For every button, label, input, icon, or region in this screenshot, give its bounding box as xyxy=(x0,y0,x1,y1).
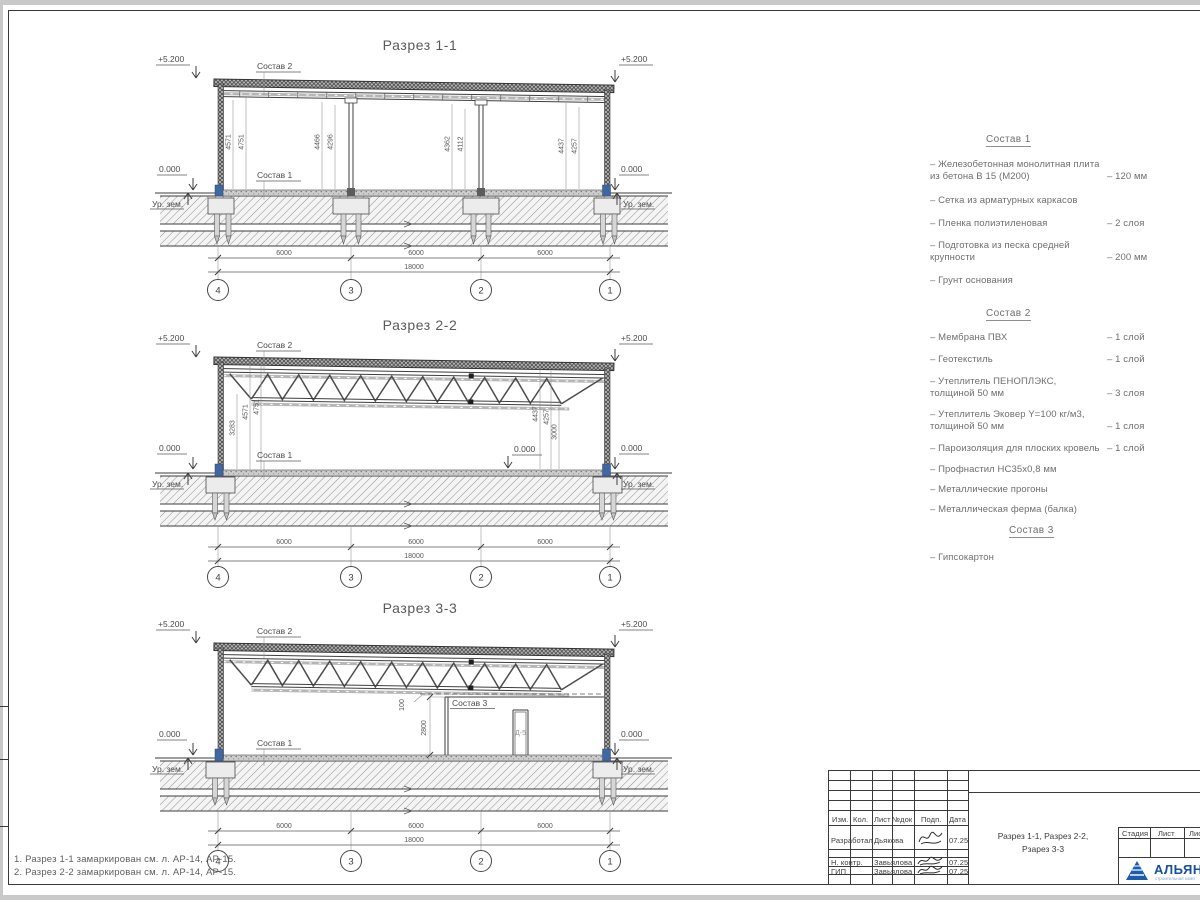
material-item: – Утеплитель Эковер Y=100 кг/м3,толщиной… xyxy=(930,409,1140,432)
tb-person: Завьялова xyxy=(874,867,912,876)
sostav2-heading: Состав 2 xyxy=(986,308,1031,321)
tb-role: ГИП xyxy=(831,867,846,876)
material-value: – 1 слой xyxy=(1107,354,1145,366)
roof-truss xyxy=(213,357,614,410)
door-label: Д-5 xyxy=(515,730,526,737)
vdim-label: 4466 xyxy=(315,134,322,150)
total-dim-label: 18000 xyxy=(404,837,424,844)
span-dim-label: 6000 xyxy=(408,539,424,546)
vdim-label: 4296 xyxy=(328,134,335,150)
purlin-ticks xyxy=(240,91,588,102)
interior-columns xyxy=(345,98,487,196)
tb-col-stadia: Стадия xyxy=(1122,829,1148,838)
span-dim-label: 6000 xyxy=(276,539,292,546)
frame-tick xyxy=(0,826,8,827)
ground-level-label: Ур. зем. xyxy=(152,479,183,489)
material-item: – Утеплитель ПЕНОПЛЭКС,толщиной 50 мм– 3… xyxy=(930,376,1140,399)
vdim-label: 4571 xyxy=(226,134,233,150)
axis-number: 3 xyxy=(348,286,353,297)
ground-strata xyxy=(160,761,668,814)
axis-bubbles: 4 3 2 1 xyxy=(208,567,621,588)
material-text: – Геотекстиль xyxy=(930,354,993,365)
vdim-label: 3000 xyxy=(552,424,559,440)
material-value: – 1 слоя xyxy=(1107,421,1144,433)
vdim-label: 100 xyxy=(399,699,406,711)
dimension-lines: 6000 6000 6000 18000 xyxy=(208,526,620,566)
elevation-label: +5.200 xyxy=(621,54,648,64)
section-3-3-drawing: Д-5 Состав 3 2800 100 Состав 2 Состав 1 … xyxy=(140,595,700,887)
document-title: Разрез 1-1, Разрез 2-2, Рзарез 3-3 xyxy=(970,830,1116,856)
material-item: – Грунт основания xyxy=(930,275,1140,287)
material-value: – 3 слоя xyxy=(1107,388,1144,400)
sostav-label: Состав 1 xyxy=(257,450,293,460)
span-dim-label: 6000 xyxy=(408,250,424,257)
vdim-label: 4362 xyxy=(445,136,452,152)
vdim-label: 3283 xyxy=(230,420,237,436)
note-line: 2. Разрез 2-2 замаркирован см. л. АР-14,… xyxy=(14,867,236,878)
axis-number: 3 xyxy=(348,857,353,868)
material-item: – Сетка из арматурных каркасов xyxy=(930,195,1140,207)
floor-slab xyxy=(155,470,672,476)
axis-number: 3 xyxy=(348,573,353,584)
material-item: – Металлическая ферма (балка) xyxy=(930,504,1140,516)
material-text: – Железобетонная монолитная плита xyxy=(930,159,1100,170)
tb-person: Завьялова xyxy=(874,858,912,867)
dimension-lines: 6000 6000 6000 18000 xyxy=(208,811,620,850)
axis-number: 2 xyxy=(478,573,483,584)
axis-number: 1 xyxy=(607,857,612,868)
elevation-label: +5.200 xyxy=(158,333,185,343)
elevation-label: 0.000 xyxy=(514,444,536,454)
roof-truss xyxy=(213,643,614,696)
ground-level-label: Ур. зем. xyxy=(623,199,654,209)
axis-number: 2 xyxy=(478,286,483,297)
elevation-label: 0.000 xyxy=(621,443,643,453)
material-item: – Подготовка из песка среднейкрупности– … xyxy=(930,240,1140,263)
span-dim-label: 6000 xyxy=(537,250,553,257)
total-dim-label: 18000 xyxy=(404,264,424,271)
ground-level-label: Ур. зем. xyxy=(623,764,654,774)
material-text: из бетона В 15 (М200) xyxy=(930,171,1030,182)
signature xyxy=(916,828,946,848)
sostav-label: Состав 2 xyxy=(257,340,293,350)
roof xyxy=(214,79,614,103)
material-text: – Пленка полиэтиленовая xyxy=(930,218,1048,229)
material-text: – Мембрана ПВХ xyxy=(930,332,1007,343)
tb-col-listov: Лис xyxy=(1189,829,1200,838)
material-item: – Пленка полиэтиленовая– 2 слоя xyxy=(930,218,1140,230)
tb-role: Разработал xyxy=(831,836,873,845)
sostav-label: Состав 1 xyxy=(257,738,293,748)
axis-number: 2 xyxy=(478,857,483,868)
elevation-label: +5.200 xyxy=(621,619,648,629)
partition-wall: Д-5 Состав 3 2800 100 xyxy=(399,694,604,758)
frame-tick xyxy=(0,759,8,760)
elevation-label: 0.000 xyxy=(159,729,181,739)
elevation-marks: +5.200 +5.200 0.000 0.000 0.000 Ур. зем.… xyxy=(150,333,655,489)
tb-col-podp: Подп. xyxy=(921,815,941,824)
span-dim-label: 6000 xyxy=(408,823,424,830)
material-text: – Грунт основания xyxy=(930,275,1013,286)
material-item: – Профнастил НС35х0,8 мм xyxy=(930,464,1140,476)
vdim-label: 4571 xyxy=(243,404,250,420)
span-dim-label: 6000 xyxy=(276,823,292,830)
material-text: – Металлическая ферма (балка) xyxy=(930,504,1077,515)
material-text: – Пароизоляция для плоских кровель xyxy=(930,443,1100,454)
material-value: – 1 слой xyxy=(1107,443,1145,455)
tb-col-ndok: №док xyxy=(892,815,912,824)
door: Д-5 xyxy=(513,710,528,755)
material-item: – Железобетонная монолитная плитаиз бето… xyxy=(930,159,1140,182)
elevation-label: 0.000 xyxy=(159,164,181,174)
elevation-label: 0.000 xyxy=(621,164,643,174)
material-item: – Гипсокартон xyxy=(930,552,1140,564)
document-title-line1: Разрез 1-1, Разрез 2-2, xyxy=(970,830,1116,843)
axis-number: 4 xyxy=(215,573,220,584)
tb-role: Н. контр. xyxy=(831,858,863,867)
material-value: – 200 мм xyxy=(1107,252,1147,264)
material-text: – Утеплитель Эковер Y=100 кг/м3, xyxy=(930,409,1085,420)
note-line: 1. Разрез 1-1 замаркирован см. л. АР-14,… xyxy=(14,854,236,865)
span-dim-label: 6000 xyxy=(537,539,553,546)
vdim-label: 2800 xyxy=(421,720,428,736)
tb-date: 07.25 xyxy=(949,858,968,867)
elevation-label: +5.200 xyxy=(158,619,185,629)
material-text: – Профнастил НС35х0,8 мм xyxy=(930,464,1057,475)
material-text: – Сетка из арматурных каркасов xyxy=(930,195,1077,206)
tb-date: 07.25 xyxy=(949,867,968,876)
material-item: – Мембрана ПВХ– 1 слой xyxy=(930,332,1140,344)
tb-date: 07.25 xyxy=(949,836,968,845)
title-block: Изм. Кол. Лист №док Подп. Дата Разработа… xyxy=(828,770,1200,884)
logo-pyramid-icon xyxy=(1124,859,1152,883)
material-text: – Гипсокартон xyxy=(930,552,994,563)
elevation-label: 0.000 xyxy=(621,729,643,739)
material-item: – Геотекстиль– 1 слой xyxy=(930,354,1140,366)
vdim-label: 4112 xyxy=(458,136,465,151)
frame-tick xyxy=(0,706,8,707)
sostav-label: Состав 3 xyxy=(452,698,488,708)
sostav-label: Состав 1 xyxy=(257,170,293,180)
vdim-label: 4751 xyxy=(239,134,246,150)
axis-number: 1 xyxy=(607,286,612,297)
vdim-label: 4437 xyxy=(533,406,540,422)
material-item: – Пароизоляция для плоских кровель– 1 сл… xyxy=(930,443,1140,455)
sostav-label: Состав 2 xyxy=(257,61,293,71)
company-logo: АЛЬЯН строительная комп xyxy=(1124,859,1200,883)
tb-col-list2: Лист xyxy=(1158,829,1175,838)
section-1-1-drawing: 4571 4751 4466 4296 4362 4112 4437 4257 … xyxy=(140,30,700,305)
drawing-sheet-page: { "colors": { "logo_blue": "#17509e", "l… xyxy=(0,0,1200,900)
logo-name: АЛЬЯН xyxy=(1154,862,1200,877)
section-2-2-drawing: 3283 4571 4751 4437 4257 3000 Состав 2 С… xyxy=(140,310,700,590)
material-text: – Металлические прогоны xyxy=(930,484,1048,495)
span-dim-label: 6000 xyxy=(537,823,553,830)
material-text: толщиной 50 мм xyxy=(930,421,1004,432)
material-text: крупности xyxy=(930,252,975,263)
vdim-label: 4437 xyxy=(559,138,566,154)
floor-slab xyxy=(155,755,672,761)
axis-number: 4 xyxy=(215,286,220,297)
axis-number: 1 xyxy=(607,573,612,584)
sostav-label: Состав 2 xyxy=(257,626,293,636)
ground-strata xyxy=(160,196,668,249)
elevation-label: +5.200 xyxy=(158,54,185,64)
material-value: – 1 слой xyxy=(1107,332,1145,344)
tb-person: Дьякова xyxy=(874,836,903,845)
material-item: – Металлические прогоны xyxy=(930,484,1140,496)
material-text: – Утеплитель ПЕНОПЛЭКС, xyxy=(930,376,1056,387)
tb-col-izm: Изм. xyxy=(832,815,848,824)
sostav1-heading: Состав 1 xyxy=(986,134,1031,147)
material-value: – 120 мм xyxy=(1107,171,1147,183)
elevation-label: 0.000 xyxy=(159,443,181,453)
span-dim-label: 6000 xyxy=(276,250,292,257)
ground-strata xyxy=(160,476,668,529)
ground-level-label: Ур. зем. xyxy=(152,199,183,209)
axis-bubbles: 4 3 2 1 xyxy=(208,851,621,872)
ground-level-label: Ур. зем. xyxy=(623,479,654,489)
frame-top-line xyxy=(8,10,1200,11)
tb-col-kol: Кол. xyxy=(853,815,868,824)
logo-subtitle: строительная комп xyxy=(1155,876,1195,881)
floor-slab xyxy=(155,190,672,196)
material-text: – Подготовка из песка средней xyxy=(930,240,1070,251)
vdim-label: 4257 xyxy=(572,138,579,154)
signature xyxy=(916,865,946,876)
material-value: – 2 слоя xyxy=(1107,218,1144,230)
sostav3-heading: Состав 3 xyxy=(1009,525,1054,538)
ground-level-label: Ур. зем. xyxy=(152,764,183,774)
total-dim-label: 18000 xyxy=(404,553,424,560)
elevation-label: +5.200 xyxy=(621,333,648,343)
tb-col-list: Лист xyxy=(874,815,891,824)
dimension-lines: 6000 6000 6000 18000 xyxy=(208,246,620,277)
document-title-line2: Рзарез 3-3 xyxy=(970,843,1116,856)
material-text: толщиной 50 мм xyxy=(930,388,1004,399)
axis-bubbles: 4 3 2 1 xyxy=(208,277,621,301)
vdim-label: 4751 xyxy=(254,399,261,415)
vdim-label: 4257 xyxy=(544,409,551,425)
tb-col-data: Дата xyxy=(949,815,966,824)
frame-left-line xyxy=(8,10,9,884)
